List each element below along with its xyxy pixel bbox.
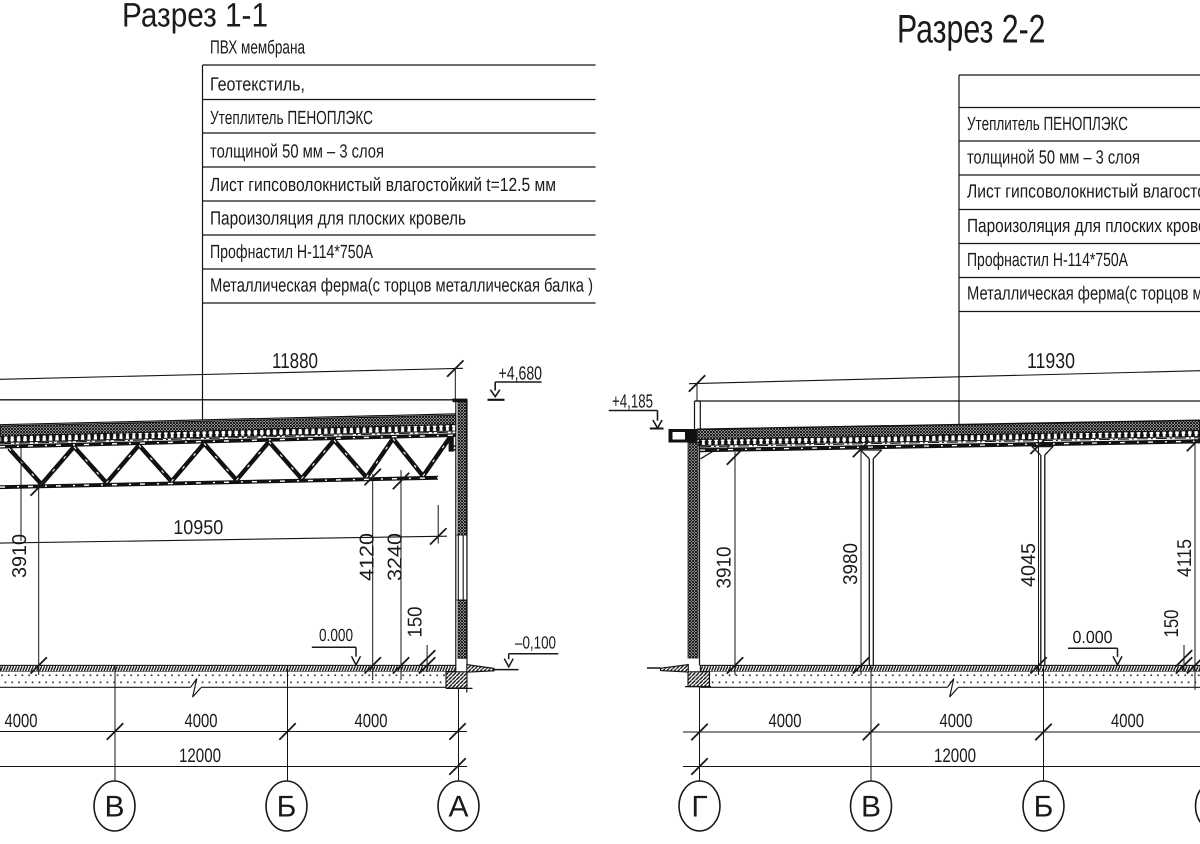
svg-text:4120: 4120	[357, 533, 379, 581]
svg-text:Геотекстиль,: Геотекстиль,	[210, 75, 305, 96]
svg-text:150: 150	[1161, 610, 1183, 638]
svg-text:4000: 4000	[5, 711, 38, 732]
svg-text:4000: 4000	[769, 711, 802, 732]
svg-text:4000: 4000	[940, 711, 973, 732]
svg-text:3980: 3980	[840, 543, 862, 585]
svg-text:Г: Г	[691, 791, 707, 824]
svg-text:11880: 11880	[272, 349, 318, 373]
svg-text:12000: 12000	[934, 745, 976, 767]
svg-text:4000: 4000	[185, 711, 218, 732]
svg-text:3240: 3240	[385, 533, 407, 581]
svg-text:Разрез 1-1: Разрез 1-1	[122, 0, 268, 34]
svg-text:Б: Б	[1034, 791, 1054, 824]
svg-text:Утеплитель ПЕНОПЛЭКС: Утеплитель ПЕНОПЛЭКС	[967, 114, 1128, 135]
svg-text:Б: Б	[277, 791, 297, 824]
svg-text:В: В	[104, 791, 124, 824]
svg-text:Профнастил Н-114*750А: Профнастил Н-114*750А	[210, 242, 373, 263]
svg-text:0.000: 0.000	[319, 625, 353, 645]
svg-text:150: 150	[405, 607, 427, 638]
svg-text:12000: 12000	[179, 745, 221, 767]
svg-text:Металлическая ферма(с торцов м: Металлическая ферма(с торцов металлическ…	[210, 276, 593, 297]
svg-text:А: А	[448, 791, 468, 824]
svg-text:толщиной 50 мм – 3 слоя: толщиной 50 мм – 3 слоя	[210, 142, 384, 163]
svg-text:11930: 11930	[1027, 349, 1075, 373]
svg-text:В: В	[861, 791, 881, 824]
svg-text:Металлическая ферма(с торцов м: Металлическая ферма(с торцов металлическ…	[967, 284, 1200, 305]
svg-text:4000: 4000	[355, 711, 388, 732]
svg-text:4045: 4045	[1018, 543, 1040, 587]
svg-text:толщиной 50 мм – 3 слоя: толщиной 50 мм – 3 слоя	[967, 148, 1140, 169]
svg-text:Разрез 2-2: Разрез 2-2	[897, 8, 1046, 52]
svg-text:10950: 10950	[173, 517, 223, 539]
svg-text:Лист гипсоволокнистый влагосто: Лист гипсоволокнистый влагостойкий t=12.…	[210, 175, 556, 196]
svg-text:0.000: 0.000	[1073, 627, 1113, 647]
svg-text:Пароизоляция для плоских крове: Пароизоляция для плоских кровель	[967, 216, 1200, 237]
svg-text:ПВХ мембрана: ПВХ мембрана	[210, 38, 305, 59]
svg-text:Профнастил Н-114*750А: Профнастил Н-114*750А	[967, 250, 1128, 271]
svg-text:Лист гипсоволокнистый влагосто: Лист гипсоволокнистый влагостойкий t=12.…	[967, 182, 1200, 203]
svg-text:Пароизоляция для плоских крове: Пароизоляция для плоских кровель	[210, 209, 466, 230]
svg-text:+4,185: +4,185	[612, 392, 653, 413]
svg-text:4000: 4000	[1111, 711, 1144, 732]
svg-text:Утеплитель ПЕНОПЛЭКС: Утеплитель ПЕНОПЛЭКС	[210, 108, 373, 129]
svg-text:3910: 3910	[9, 534, 31, 578]
svg-text:4115: 4115	[1174, 539, 1196, 577]
svg-text:3910: 3910	[714, 547, 736, 589]
svg-text:–0,100: –0,100	[515, 633, 556, 653]
